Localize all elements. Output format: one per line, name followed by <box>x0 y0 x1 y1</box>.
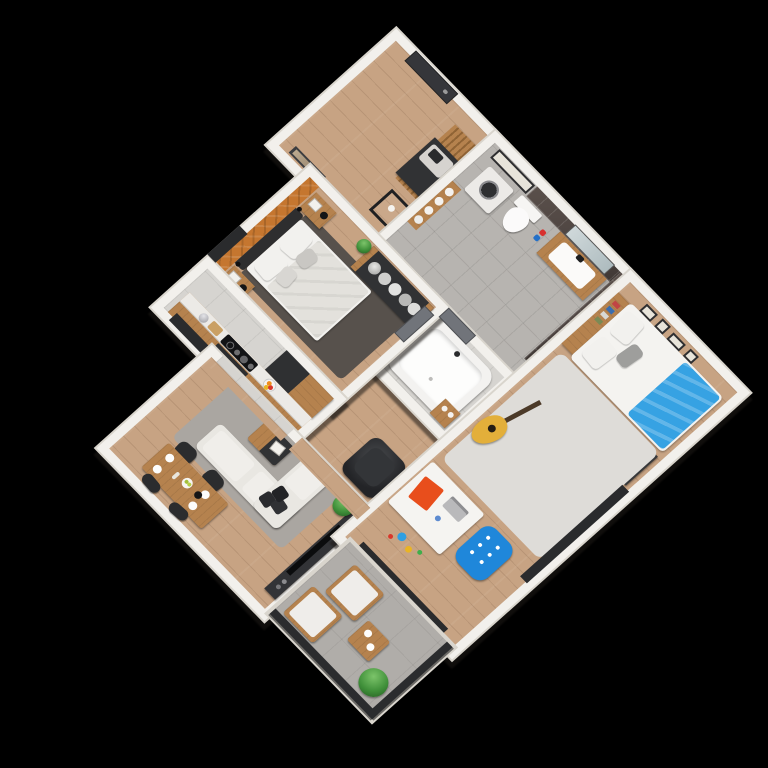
gray-pillow <box>614 342 644 369</box>
balcony-side-table <box>347 620 391 662</box>
apartment-isometric-plan <box>31 41 738 719</box>
armchair-seat-cushion <box>351 445 398 490</box>
door-handle-icon <box>442 89 448 95</box>
books-icon <box>228 272 241 284</box>
towel-rolls-icon <box>440 405 448 413</box>
chair-back-holes-icon <box>485 535 491 540</box>
guitar-soundhole-icon <box>486 423 497 433</box>
bedside-lamp-icon <box>237 283 248 294</box>
books-icon <box>612 300 621 309</box>
hanging-clothes-icon <box>365 259 383 277</box>
fruit-plate <box>179 476 195 491</box>
washing-machine-door-icon <box>475 177 503 204</box>
laptop-icon <box>442 496 469 523</box>
flower-vase-icon <box>171 471 180 480</box>
entry-door <box>406 52 457 103</box>
pears-icon <box>184 479 190 484</box>
mirror-glass <box>292 149 322 180</box>
decor-vases-icon <box>281 578 288 585</box>
toiletry-bottles-icon <box>538 229 546 237</box>
plates-icon <box>362 628 373 639</box>
toys-icon <box>396 531 409 543</box>
plates-icon <box>163 452 176 464</box>
bedside-lamp-icon <box>318 210 329 221</box>
burner-rings-icon <box>225 340 236 351</box>
scene-background <box>0 0 768 768</box>
candle-icon <box>386 204 396 213</box>
orange-desk-pad <box>408 476 444 511</box>
teapot-icon <box>192 490 203 501</box>
rolled-towels-icon <box>443 186 456 198</box>
books-icon <box>309 199 322 211</box>
desk-cup-icon <box>434 514 442 522</box>
fruit-icon <box>266 380 273 387</box>
